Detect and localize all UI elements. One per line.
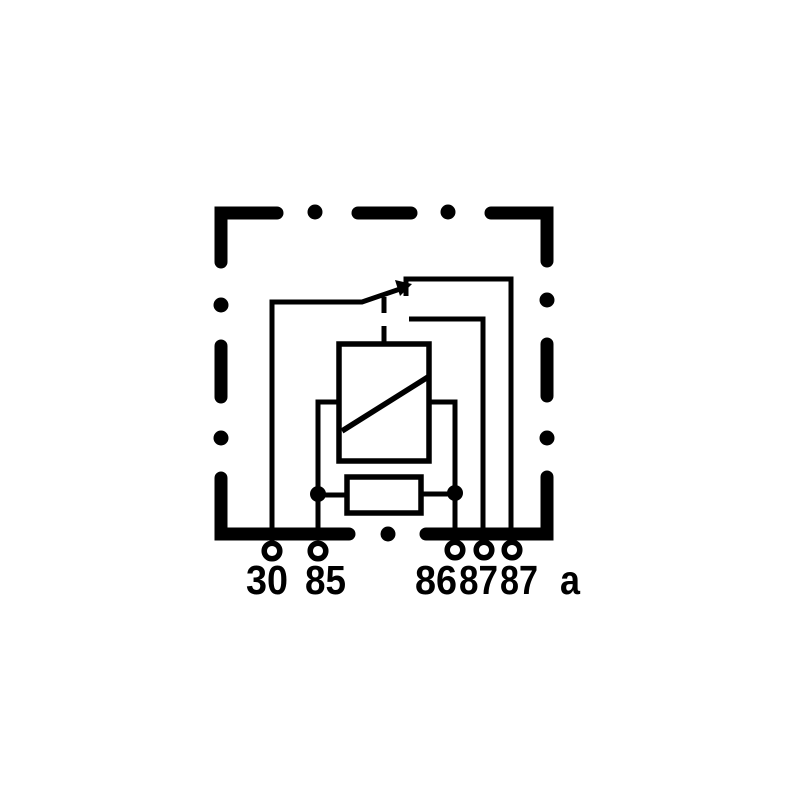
terminal-label-87a-number: 87	[500, 557, 538, 603]
terminal-label-87: 87	[459, 557, 498, 603]
relay-schematic-canvas: 30 85 86 87 87 a	[0, 0, 800, 800]
border-top-right-corner	[491, 213, 547, 261]
relay-schematic: 30 85 86 87 87 a	[0, 0, 800, 800]
border-bottom-right-corner	[426, 477, 547, 534]
border-dot	[308, 205, 323, 220]
border-dot	[540, 431, 555, 446]
terminal-label-30: 30	[246, 557, 288, 603]
border-dot	[214, 298, 229, 313]
border-dot	[214, 431, 229, 446]
border-dot	[381, 527, 396, 542]
terminal-label-85: 85	[305, 557, 346, 603]
border-dot	[540, 293, 555, 308]
junction-dot	[310, 486, 326, 502]
terminal-pin-86	[447, 542, 463, 558]
terminal-pin-87	[476, 542, 492, 558]
junction-dot	[447, 485, 463, 501]
wire-coil-to-terminal-86	[428, 402, 455, 537]
border-bottom-left-corner	[221, 478, 349, 534]
border-top-left-corner	[221, 213, 277, 262]
terminal-label-86: 86	[415, 557, 457, 603]
resistor-box	[347, 477, 421, 513]
terminal-pin-87a	[504, 542, 520, 558]
border-dot	[441, 205, 456, 220]
terminal-labels: 30 85 86 87 87 a	[246, 557, 581, 603]
relay-circuit	[272, 279, 511, 541]
terminal-label-87a-suffix: a	[560, 557, 581, 603]
